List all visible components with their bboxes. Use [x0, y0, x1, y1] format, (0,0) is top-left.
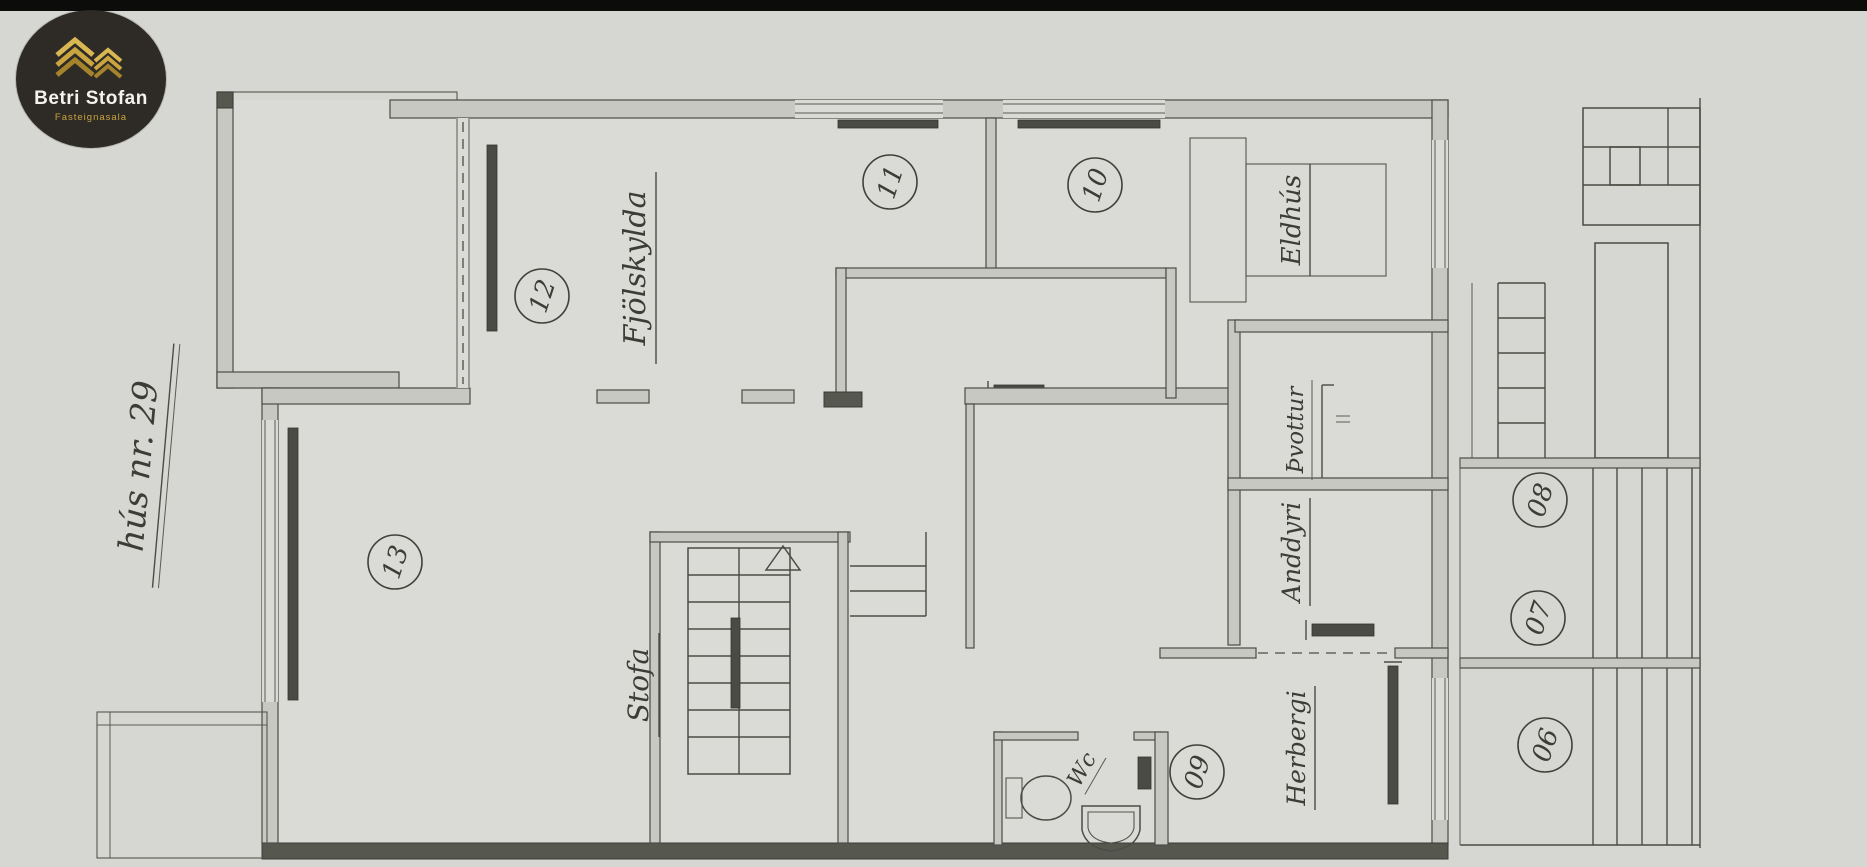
balcony-interior	[231, 100, 457, 380]
wall-segment	[838, 532, 848, 843]
room-number-08: 08	[1522, 480, 1561, 521]
wall-segment	[836, 268, 1166, 278]
floor-step	[742, 390, 794, 403]
radiator	[487, 145, 497, 331]
wall-segment	[836, 268, 846, 398]
agency-logo: Betri Stofan Fasteignasala	[16, 10, 166, 148]
balcony-left-wall	[217, 92, 233, 388]
radiator	[1138, 757, 1151, 789]
house-number-label: hús nr. 29	[109, 340, 180, 588]
logo-tagline-text: Fasteignasala	[55, 112, 127, 123]
wall-segment	[1460, 658, 1700, 668]
underline	[158, 344, 179, 588]
logo-brand-text: Betri Stofan	[34, 89, 148, 108]
room-number-06: 06	[1527, 725, 1566, 766]
radiator	[1388, 666, 1398, 804]
room-label-eldhus: Eldhús	[1277, 175, 1307, 267]
wall-segment	[1160, 648, 1256, 658]
window-glass	[1432, 678, 1448, 820]
room-circle-08: 08	[1513, 473, 1567, 527]
radiator	[1312, 624, 1374, 636]
room-circle-07: 07	[1511, 591, 1565, 645]
window-glass	[795, 100, 943, 118]
balcony-post	[217, 92, 233, 108]
wall-segment-left-transition	[262, 388, 470, 404]
window-glass	[1432, 140, 1448, 268]
radiator	[838, 120, 938, 128]
southwest-terrace	[97, 712, 267, 858]
buildings-icon	[49, 35, 133, 87]
chimney-flue	[1610, 147, 1640, 185]
wall-segment	[1395, 648, 1448, 658]
room-number-07: 07	[1520, 598, 1559, 639]
wall-segment	[994, 732, 1078, 740]
wall-segment	[1460, 458, 1700, 468]
wall-segment	[966, 404, 974, 648]
wall-segment-bottom	[262, 843, 1448, 859]
wall-segment	[1228, 478, 1448, 490]
room-label-thvottur: Þvottur	[1283, 385, 1309, 475]
room-label-fjolskylda: Fjölskylda	[618, 191, 653, 347]
room-circle-06: 06	[1518, 718, 1572, 772]
chimney	[1583, 108, 1700, 225]
stair-handrail	[731, 618, 740, 708]
wall-segment	[965, 388, 1237, 404]
window-glass	[262, 420, 278, 702]
porch	[1595, 243, 1668, 458]
floorplan-drawing: hús nr. 29 Fjölskylda Stofa Eldhús Þvott…	[0, 0, 1867, 867]
window-glass	[1003, 100, 1165, 118]
wall-segment	[1155, 732, 1168, 845]
room-label-anddyri: Anddyri	[1277, 502, 1306, 604]
room-label-herbergi: Herbergi	[1282, 690, 1311, 806]
wall-segment	[994, 732, 1002, 845]
radiator	[1018, 120, 1160, 128]
wall-pier	[824, 392, 862, 407]
radiator	[288, 428, 298, 700]
wall-segment	[650, 532, 850, 542]
room-label-stofa: Stofa	[622, 648, 655, 722]
wall-segment	[986, 118, 996, 275]
terrace-outline	[97, 712, 267, 858]
floor-step	[597, 390, 649, 403]
balcony-bottom-wall	[217, 372, 399, 388]
wall-segment	[1166, 268, 1176, 398]
wall-segment	[1235, 320, 1448, 332]
entry-exterior	[1460, 98, 1700, 848]
